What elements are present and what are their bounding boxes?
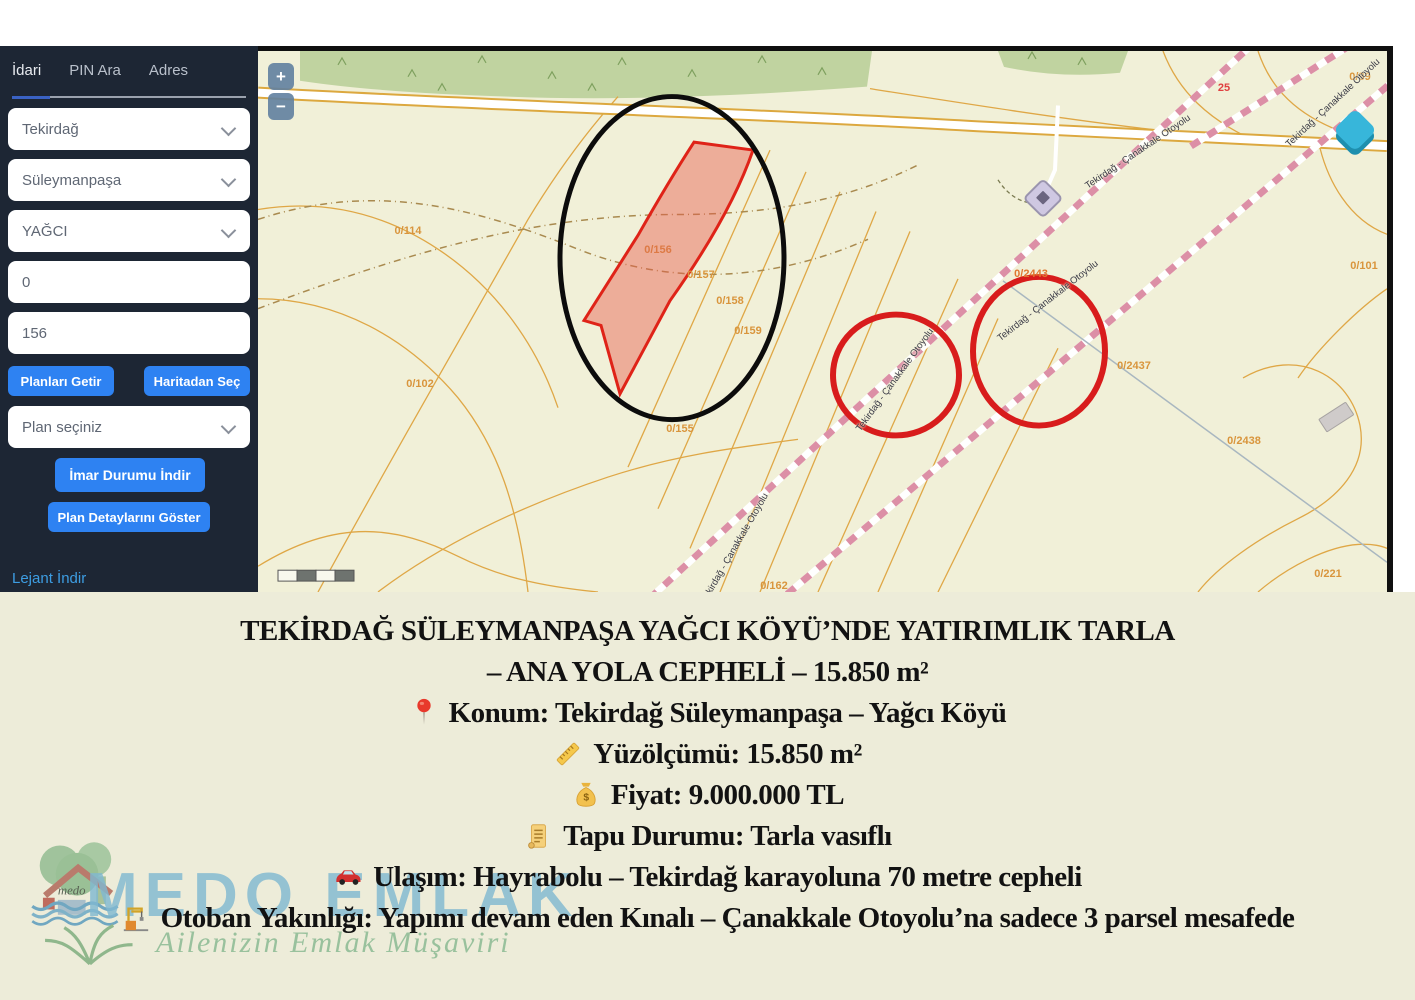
listing-line-text: TEKİRDAĞ SÜLEYMANPAŞA YAĞCI KÖYÜ’NDE YAT… [240, 615, 1175, 648]
map-zoom-controls: + − [268, 63, 294, 123]
car-icon [333, 862, 363, 892]
cadastral-map[interactable]: 0/1140/1020/1560/1570/1580/1590/1550/162… [258, 46, 1393, 592]
listing-line-text: – ANA YOLA CEPHELİ – 15.850 m² [487, 656, 928, 689]
province-select-value: Tekirdağ [22, 121, 79, 138]
money-bag-icon: $ [571, 780, 601, 810]
construction-crane-icon [121, 903, 151, 933]
ruler-icon [553, 739, 583, 769]
neighborhood-select[interactable]: YAĞCI [8, 210, 250, 252]
listing-line-text: Yüzölçümü: 15.850 m² [593, 738, 862, 771]
pick-from-map-button[interactable]: Haritadan Seç [144, 366, 250, 396]
plan-select[interactable]: Plan seçiniz [8, 406, 250, 448]
chevron-down-icon [221, 172, 237, 188]
listing-line: Otoban Yakınlığı: Yapımı devam eden Kına… [0, 901, 1415, 935]
listing-line: Ulaşım: Hayrabolu – Tekirdağ karayoluna … [0, 860, 1415, 894]
block-number-input[interactable]: 0 [8, 261, 250, 303]
tab-adres[interactable]: Adres [149, 62, 188, 79]
listing-line-text: Fiyat: 9.000.000 TL [611, 779, 844, 812]
chevron-down-icon [221, 419, 237, 435]
map-artwork [258, 51, 1387, 592]
listing-line: $Fiyat: 9.000.000 TL [0, 778, 1415, 812]
get-plans-button[interactable]: Planları Getir [8, 366, 114, 396]
download-zoning-button[interactable]: İmar Durumu İndir [55, 458, 205, 492]
listing-section: medo MEDO EMLAK Ailenizin Emlak Müşaviri… [0, 592, 1415, 1000]
listing-line-text: Ulaşım: Hayrabolu – Tekirdağ karayoluna … [373, 861, 1082, 894]
listing-line-text: Otoban Yakınlığı: Yapımı devam eden Kına… [161, 902, 1295, 935]
listing-line: Yüzölçümü: 15.850 m² [0, 737, 1415, 771]
block-number-value: 0 [22, 274, 30, 291]
forest-area [300, 51, 872, 98]
parcel-number-input[interactable]: 156 [8, 312, 250, 354]
pin-icon [409, 698, 439, 728]
neighborhood-select-value: YAĞCI [22, 223, 68, 240]
chevron-down-icon [221, 121, 237, 137]
marker-access-path [1045, 105, 1058, 192]
listing-line: Tapu Durumu: Tarla vasıflı [0, 819, 1415, 853]
tab-i̇dari[interactable]: İdari [12, 62, 41, 79]
annotation-circle-red-2 [973, 277, 1105, 426]
listing-line-text: Konum: Tekirdağ Süleymanpaşa – Yağcı Köy… [449, 697, 1007, 730]
tab-pin-ara[interactable]: PIN Ara [69, 62, 121, 79]
listing-line: TEKİRDAĞ SÜLEYMANPAŞA YAĞCI KÖYÜ’NDE YAT… [0, 614, 1415, 648]
province-select[interactable]: Tekirdağ [8, 108, 250, 150]
district-select[interactable]: Süleymanpaşa [8, 159, 250, 201]
parcel-number-value: 156 [22, 325, 47, 342]
active-tab-indicator [12, 96, 50, 99]
listing-line: – ANA YOLA CEPHELİ – 15.850 m² [0, 655, 1415, 689]
scroll-icon [523, 821, 553, 851]
chevron-down-icon [221, 223, 237, 239]
download-legend-link[interactable]: Lejant İndir [12, 570, 86, 587]
svg-text:$: $ [583, 793, 589, 804]
listing-line-text: Tapu Durumu: Tarla vasıflı [563, 820, 891, 853]
building-footprint [1319, 402, 1354, 432]
zoom-in-button[interactable]: + [268, 63, 294, 90]
facility-marker [1024, 179, 1062, 217]
listing-line: Konum: Tekirdağ Süleymanpaşa – Yağcı Köy… [0, 696, 1415, 730]
plan-select-placeholder: Plan seçiniz [22, 419, 102, 436]
sidebar-tabs: İdariPIN AraAdres [0, 46, 258, 79]
forest-area [998, 51, 1128, 75]
sidebar-panel: İdariPIN AraAdres Tekirdağ Süleymanpaşa … [0, 46, 258, 592]
highlighted-parcel [584, 142, 753, 394]
footpaths [258, 165, 918, 309]
listing-text-block: TEKİRDAĞ SÜLEYMANPAŞA YAĞCI KÖYÜ’NDE YAT… [0, 592, 1415, 935]
page: İdariPIN AraAdres Tekirdağ Süleymanpaşa … [0, 0, 1415, 1000]
map-scale-bar [278, 570, 354, 581]
district-select-value: Süleymanpaşa [22, 172, 121, 189]
zoom-out-button[interactable]: − [268, 93, 294, 120]
show-plan-details-button[interactable]: Plan Detaylarını Göster [48, 502, 210, 532]
